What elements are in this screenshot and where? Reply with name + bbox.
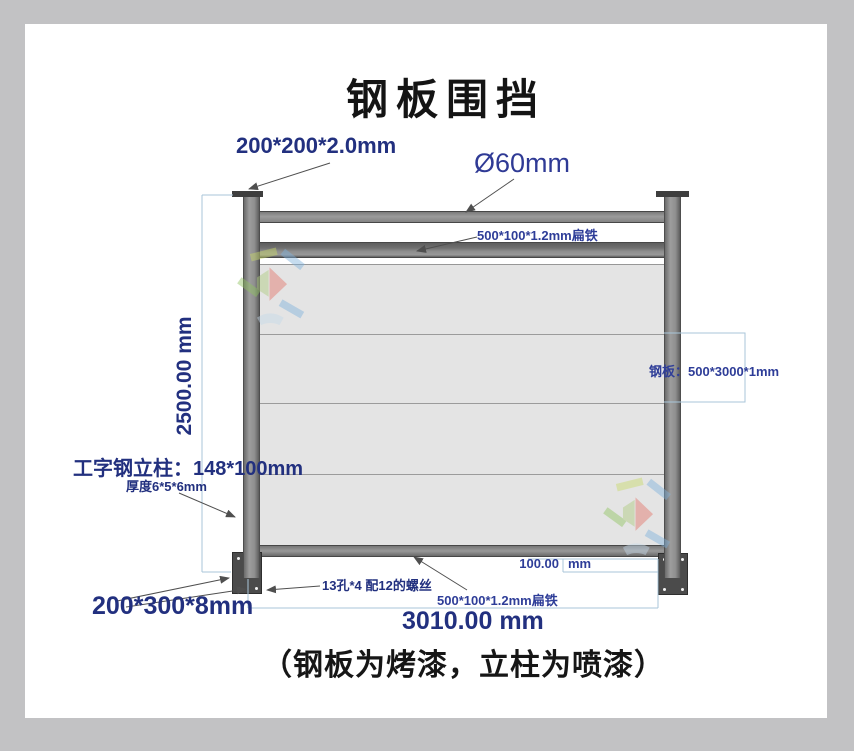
steel-panel-stack	[260, 264, 664, 545]
bolt-hole	[255, 587, 258, 590]
pipe-diameter-dimension: Ø60mm	[474, 148, 570, 179]
base-plate-dimension: 200*300*8mm	[92, 592, 253, 621]
bolt-hole	[237, 587, 240, 590]
left-column-cap-plate	[232, 191, 263, 197]
panel-seam	[260, 474, 664, 475]
steel-panel-spec-label: 钢板：500*3000*1mm	[649, 361, 779, 380]
bolt-hole	[237, 557, 240, 560]
bolt-hole	[681, 558, 684, 561]
total-height-dimension: 2500.00 mm	[173, 283, 197, 469]
cap-plate-dimension: 200*200*2.0mm	[236, 133, 396, 159]
diagram-page: 钢板围挡 200*200*2.0mm Ø60mm 500*100*1.2mm扁铁…	[0, 0, 854, 751]
upper-flat-iron-label: 500*100*1.2mm扁铁	[477, 225, 598, 244]
upper-flat-iron-rail	[257, 242, 666, 258]
bottom-flat-iron-rail	[256, 545, 666, 557]
left-i-beam-column	[243, 196, 260, 578]
panel-seam	[260, 403, 664, 404]
total-width-dimension: 3010.00 mm	[402, 607, 544, 636]
panel-seam	[260, 334, 664, 335]
ground-offset-value: 100.00	[506, 556, 559, 571]
top-pipe-rail	[257, 211, 666, 223]
bolt-holes-label: 13孔*4 配12的螺丝	[322, 575, 432, 594]
bolt-hole	[681, 588, 684, 591]
right-column-cap-plate	[656, 191, 689, 197]
bolt-hole	[663, 588, 666, 591]
ground-offset-unit: mm	[568, 556, 591, 571]
right-i-beam-column	[664, 196, 681, 578]
paint-finish-note: （钢板为烤漆，立柱为喷漆）	[262, 640, 665, 684]
column-thickness-label: 厚度6*5*6mm	[126, 476, 207, 495]
diagram-title: 钢板围挡	[346, 66, 546, 127]
